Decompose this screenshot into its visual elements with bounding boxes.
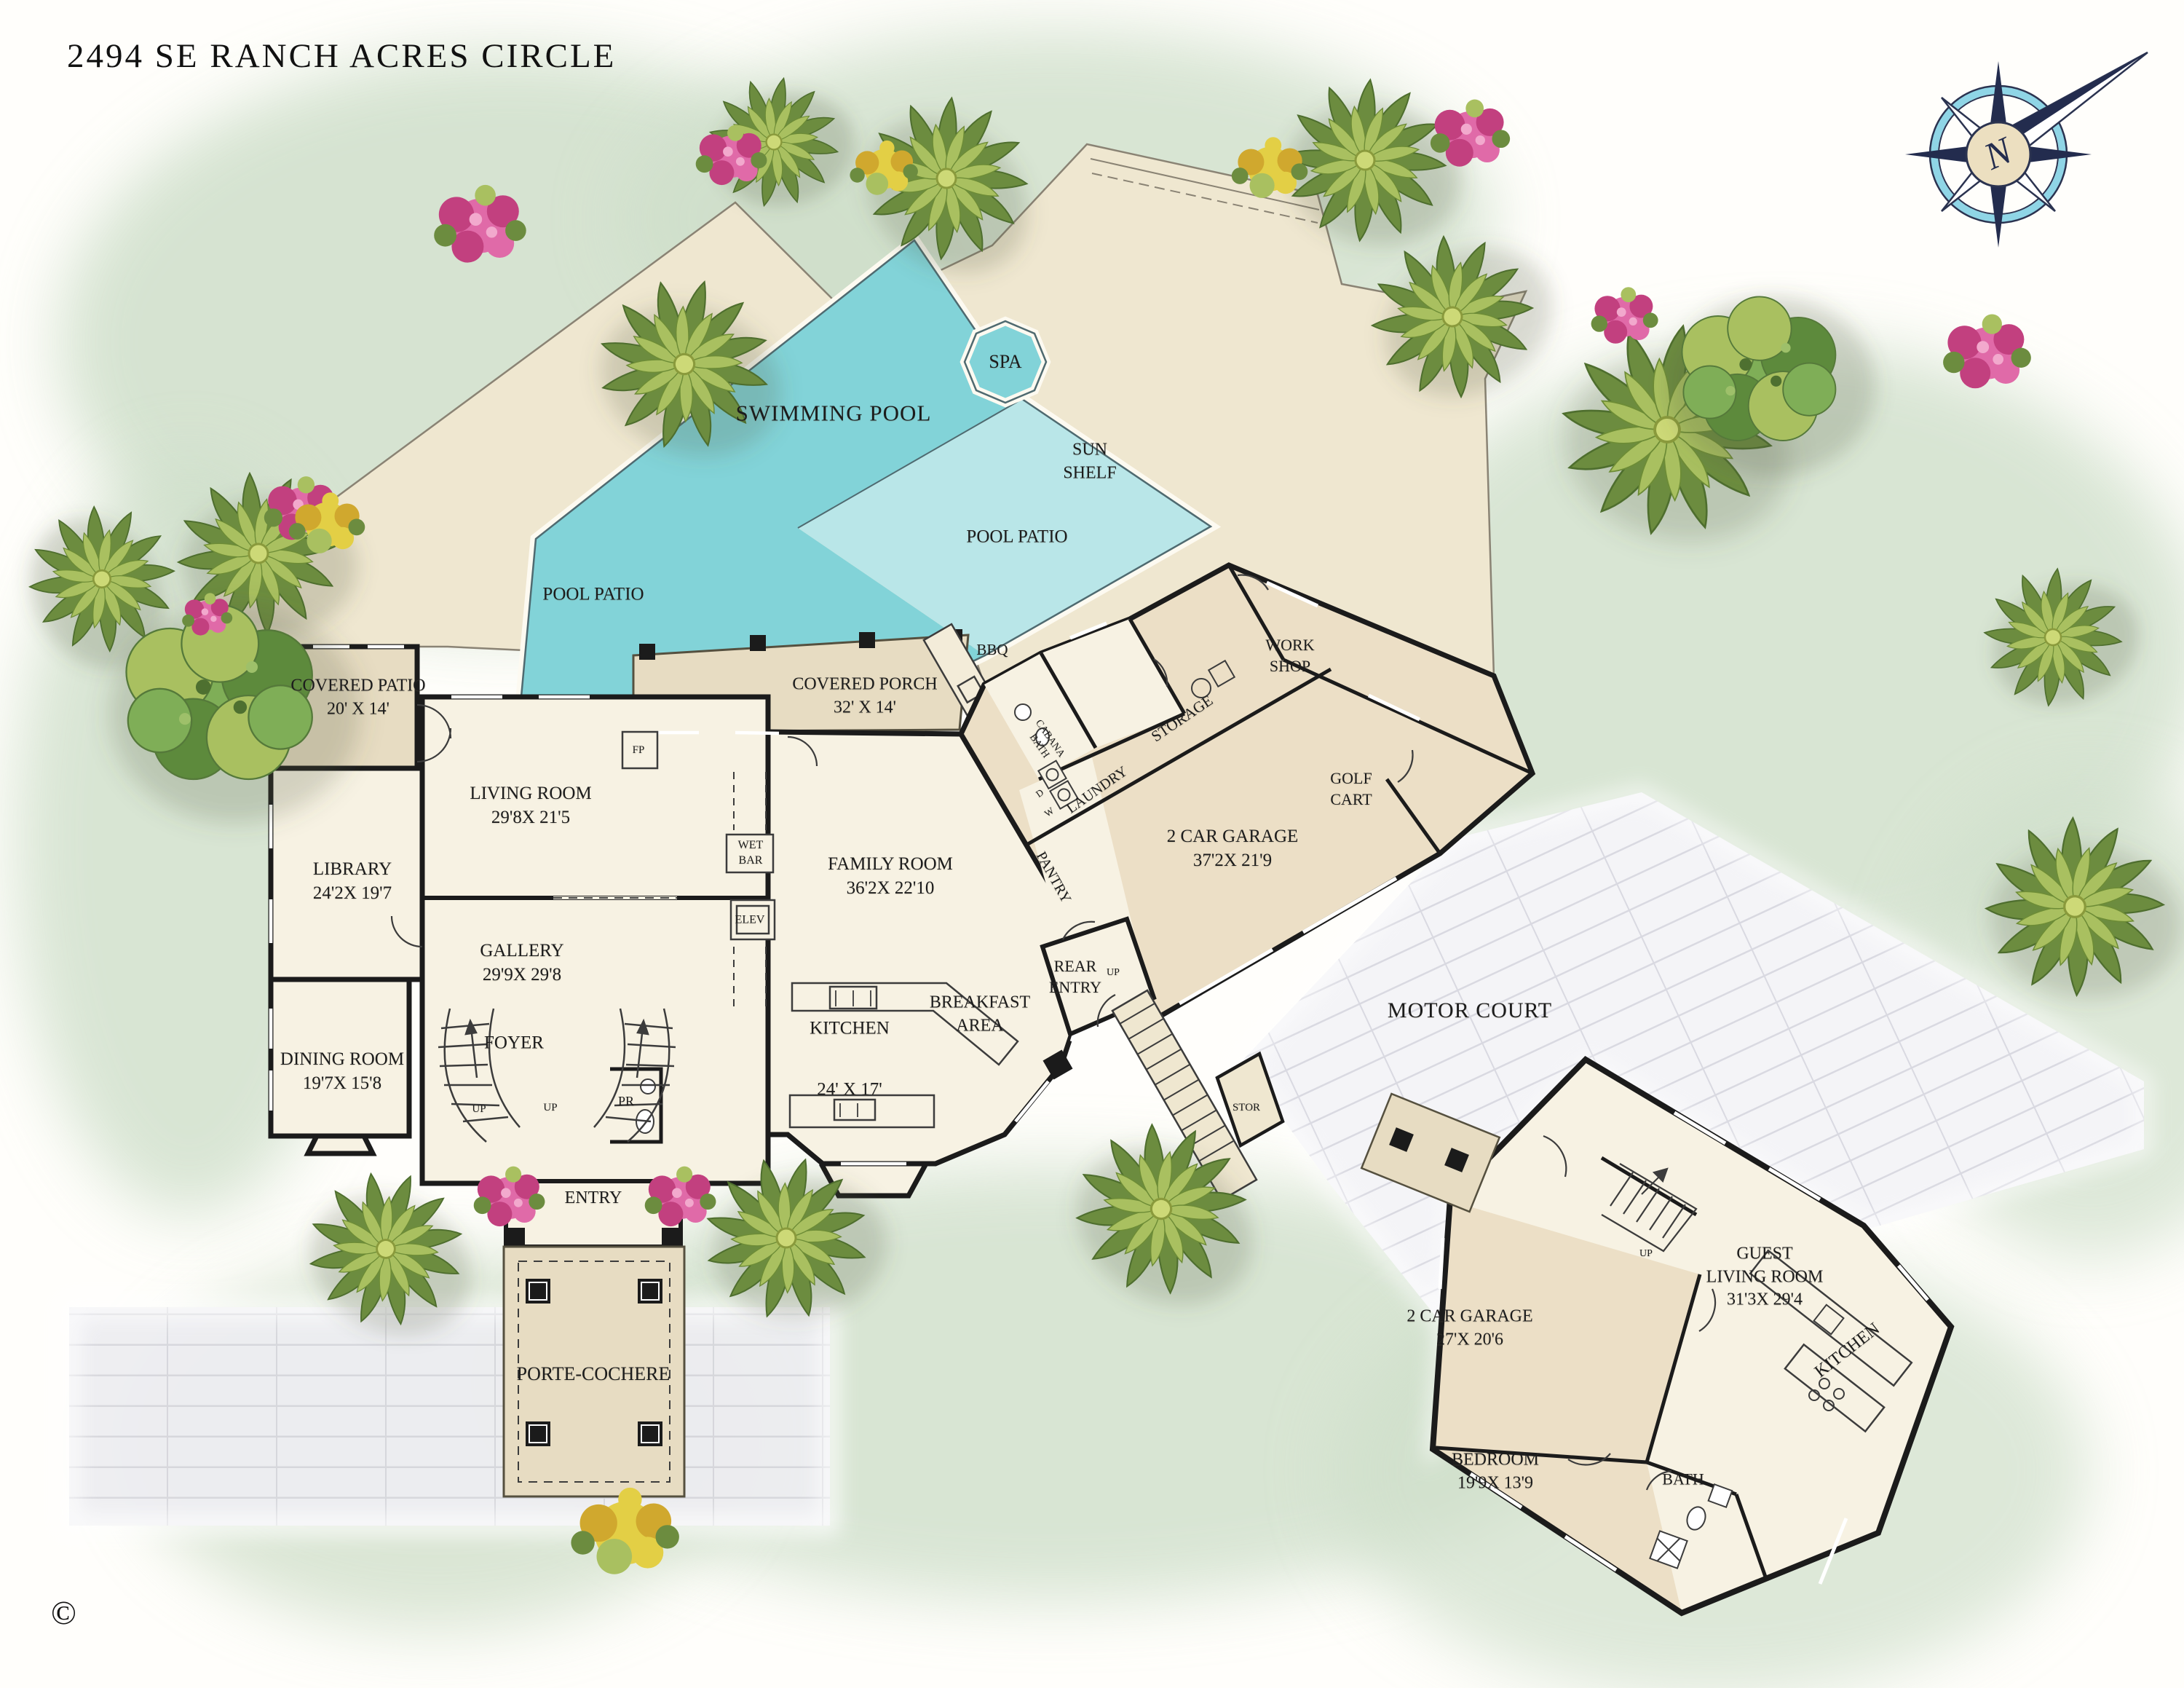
driveway [69,1307,830,1526]
spa-area [965,321,1046,403]
floor-plan-page: N SWIMMING POOLSUN SHELFSPAPOOL PATIOPOO… [0,0,2184,1688]
copyright-symbol: © [51,1593,76,1632]
bush-plant [1669,296,1876,476]
site-plan-drawing: N [0,0,2184,1688]
pinkcluster-plant [1591,287,1658,344]
porte-cochere-structure [504,1181,684,1496]
page-title: 2494 SE RANCH ACRES CIRCLE [67,36,616,76]
bush-plant [110,605,361,823]
fireplace [622,732,657,768]
north-compass: N [1905,52,2148,248]
